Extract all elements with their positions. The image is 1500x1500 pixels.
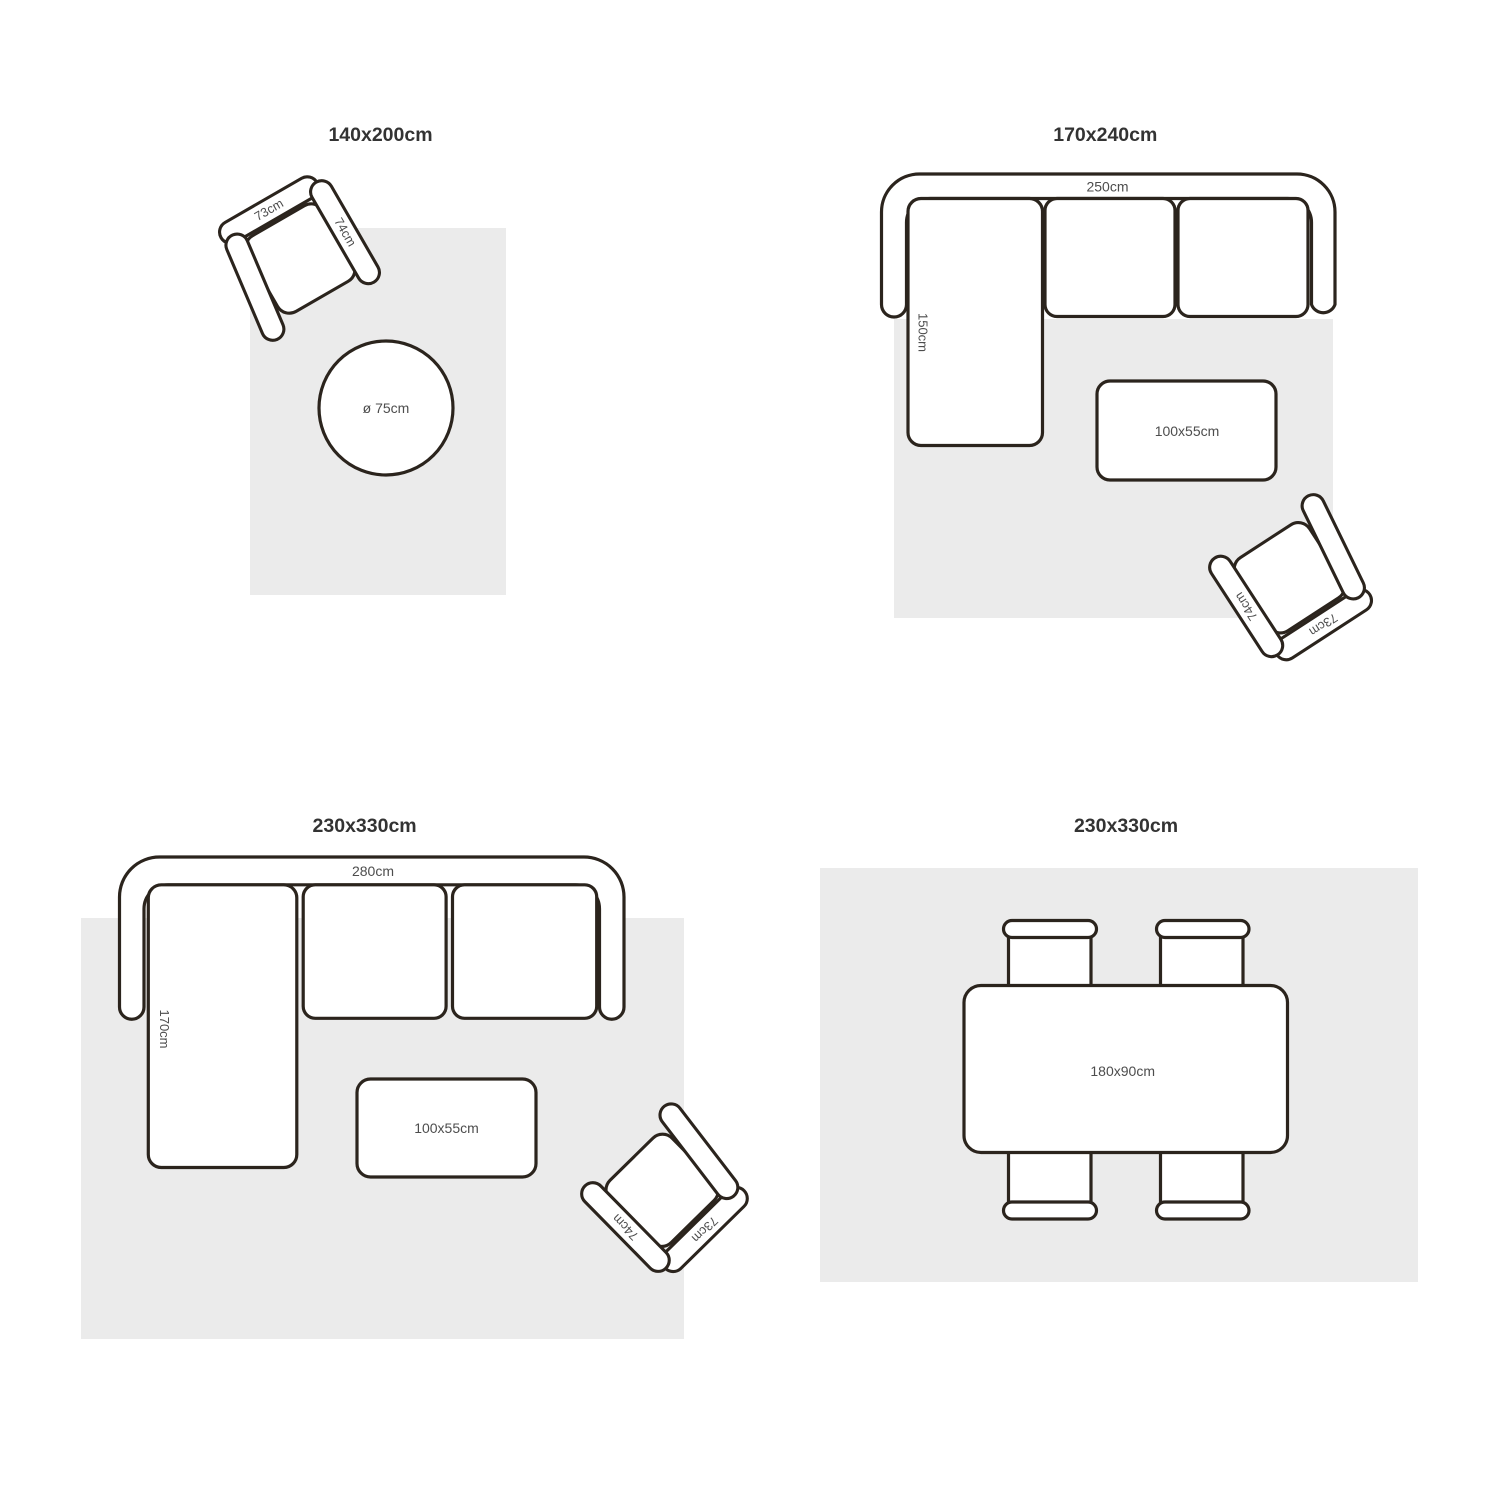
svg-text:150cm: 150cm — [916, 313, 931, 352]
svg-text:ø 75cm: ø 75cm — [363, 400, 410, 416]
svg-text:100x55cm: 100x55cm — [414, 1120, 479, 1136]
svg-text:230x330cm: 230x330cm — [1074, 815, 1178, 837]
svg-text:100x55cm: 100x55cm — [1155, 423, 1220, 439]
svg-text:170x240cm: 170x240cm — [1053, 124, 1157, 146]
svg-text:280cm: 280cm — [352, 863, 394, 879]
svg-text:250cm: 250cm — [1086, 179, 1128, 195]
svg-text:180x90cm: 180x90cm — [1090, 1063, 1155, 1079]
svg-text:170cm: 170cm — [157, 1009, 172, 1048]
svg-text:140x200cm: 140x200cm — [328, 124, 432, 146]
svg-text:230x330cm: 230x330cm — [313, 815, 417, 837]
